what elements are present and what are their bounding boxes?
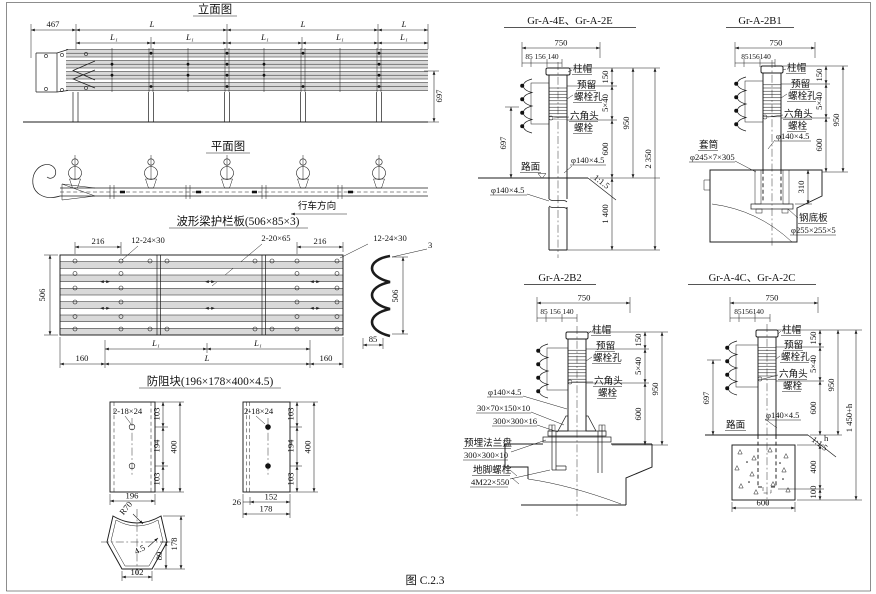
reserved-label-1: 预留 xyxy=(596,340,615,352)
blockout-bracket xyxy=(736,345,758,387)
dim-600: 600 xyxy=(600,143,610,156)
reserved-label-2: 螺栓孔 xyxy=(788,90,817,102)
terminal-spiral xyxy=(33,164,60,197)
plate16-label: 300×300×16 xyxy=(493,416,538,426)
holes-label-left: 12-24×30 xyxy=(131,235,165,245)
thickness-label: 3 xyxy=(428,240,432,250)
detailB-title: Gr-A-2B1 xyxy=(738,16,781,27)
dim-600-foundation: 600 xyxy=(757,498,770,508)
road-label: 路面 xyxy=(726,419,746,431)
dim-L1: L₁ xyxy=(185,32,194,42)
dim-150: 150 xyxy=(633,334,643,347)
detail-gr-a-4c-2c: Gr-A-4C、Gr-A-2C 750 85156140 1:1.5 h 路面 … xyxy=(688,273,862,512)
dim-697: 697 xyxy=(701,391,711,405)
gusset-label: 30×70×150×10 xyxy=(477,403,530,413)
pipe-label: φ140×4.5 xyxy=(776,131,809,141)
dim-600: 600 xyxy=(814,139,824,152)
dim-750: 750 xyxy=(555,38,568,48)
dim-L1-b: L₁ xyxy=(253,338,262,348)
dim-467: 467 xyxy=(47,19,61,29)
dim-194: 194 xyxy=(152,439,162,453)
posts xyxy=(73,92,382,122)
dim-506-right: 506 xyxy=(390,289,400,303)
dim-L: L xyxy=(401,19,407,29)
plan-view: 平面图 行车方向 xyxy=(33,140,428,214)
pipe-label-upper: φ140×4.5 xyxy=(571,155,604,165)
dim-L: L xyxy=(204,353,210,363)
blockout-bracket xyxy=(745,81,763,122)
block-title: 防阻块(196×178×400×4.5) xyxy=(147,374,274,388)
dim-506-left: 506 xyxy=(37,288,47,302)
base-plate-label-2: φ255×255×5 xyxy=(791,225,836,235)
dim-196: 196 xyxy=(126,491,140,501)
dim-L1: L₁ xyxy=(109,32,118,42)
dim-160-right: 160 xyxy=(320,353,333,363)
drawing-page: 立面图 467 L L L L₁ L₁ L₁ L₁ L₁ xyxy=(0,0,876,594)
dim-L1: L₁ xyxy=(335,32,344,42)
dim-950: 950 xyxy=(621,117,631,130)
hex-bolt-label-1: 六角头 xyxy=(779,368,808,380)
dim-310: 310 xyxy=(796,181,806,194)
dim-L: L xyxy=(149,19,155,29)
elevation-view: 立面图 467 L L L L₁ L₁ L₁ L₁ L₁ xyxy=(23,2,444,122)
dim-5x40: 5×40 xyxy=(633,357,643,375)
beam-plate-drawing: 波形梁护栏板(506×85×3) 216 12-24×30 2-20×65 21… xyxy=(37,214,432,368)
pipe-label-lower: φ140×4.5 xyxy=(491,185,524,195)
dim-L: L xyxy=(300,19,306,29)
post-break xyxy=(549,199,567,209)
beam-profile xyxy=(520,79,532,133)
block-section: R70 4.5 89 178 102 xyxy=(101,499,185,581)
dim-89: 89 xyxy=(154,552,164,561)
block-drawing: 防阻块(196×178×400×4.5) 2-18×24 103 194 103… xyxy=(101,374,318,581)
plan-title: 平面图 xyxy=(211,140,245,153)
dim-750: 750 xyxy=(578,293,591,303)
reserved-label-2: 螺栓孔 xyxy=(781,351,810,363)
reserved-label-2: 螺栓孔 xyxy=(593,352,622,364)
dim-216-left: 216 xyxy=(92,236,106,246)
anchor-label-1: 地脚螺栓 xyxy=(473,464,512,476)
dim-4.5: 4.5 xyxy=(132,542,146,556)
dim-L1: L₁ xyxy=(260,32,269,42)
hex-bolt-label-2: 螺栓 xyxy=(783,380,803,392)
blockout-bracket xyxy=(531,83,549,124)
dim-85-156-140: 85156140 xyxy=(734,307,764,316)
detail-gr-a-4e-2e: Gr-A-4E、Gr-A-2E 750 85 156 140 1:1.5 路面 … xyxy=(478,16,660,258)
detailD-title: Gr-A-4C、Gr-A-2C xyxy=(709,273,796,284)
pipe-label: φ140×4.5 xyxy=(488,387,521,397)
dim-600: 600 xyxy=(633,408,643,421)
dim-950: 950 xyxy=(831,114,841,127)
plan-posts xyxy=(69,155,386,188)
dim-85-156-140: 85156140 xyxy=(741,52,771,61)
dim-R70: R70 xyxy=(117,499,134,516)
cap-label: 柱帽 xyxy=(573,63,592,75)
base-plate-label-1: 钢底板 xyxy=(799,212,828,224)
cap-label: 柱帽 xyxy=(592,324,611,336)
dim-1450h: 1 450+h xyxy=(844,403,854,432)
dim-400: 400 xyxy=(808,461,818,474)
beam-profile xyxy=(536,344,548,398)
dim-103: 103 xyxy=(152,408,162,421)
detailC-title: Gr-A-2B2 xyxy=(538,273,581,284)
road-label: 路面 xyxy=(521,161,541,173)
dim-950: 950 xyxy=(650,383,660,396)
dim-178: 178 xyxy=(260,504,273,514)
dim-85-156-140: 85 156 140 xyxy=(525,52,559,61)
cap-label: 柱帽 xyxy=(787,62,806,74)
traffic-direction-label: 行车方向 xyxy=(298,200,336,212)
reserved-label-2: 螺栓孔 xyxy=(574,91,603,103)
dim-h: h xyxy=(824,433,829,443)
blockout-bracket xyxy=(547,348,568,390)
dim-85-156-140: 85 156 140 xyxy=(540,307,574,316)
dim-103: 103 xyxy=(286,408,296,421)
pipe-label: φ140×4.5 xyxy=(766,410,799,420)
guardrail-beams xyxy=(66,50,428,91)
sleeve-label-1: 套筒 xyxy=(699,139,719,151)
reserved-label-1: 预留 xyxy=(577,79,596,91)
dim-194: 194 xyxy=(286,439,296,453)
reserved-label-1: 预留 xyxy=(784,339,803,351)
dim-103: 103 xyxy=(286,473,296,486)
dim-1400: 1 400 xyxy=(600,204,610,223)
dim-697: 697 xyxy=(498,136,508,150)
elevation-title: 立面图 xyxy=(198,2,232,16)
dim-750: 750 xyxy=(766,293,779,303)
flange-label-2: 300×300×10 xyxy=(464,450,508,460)
detailA-title: Gr-A-4E、Gr-A-2E xyxy=(527,16,612,27)
holes-label-right: 12-24×30 xyxy=(373,233,407,243)
slope-label: 1:1.5 xyxy=(592,172,612,190)
dim-L1-a: L₁ xyxy=(151,338,160,348)
dim-160-left: 160 xyxy=(76,353,89,363)
dim-950: 950 xyxy=(826,379,836,392)
hex-bolt-label-2: 螺栓 xyxy=(574,122,594,134)
dim-400: 400 xyxy=(169,441,179,454)
plate-title: 波形梁护栏板(506×85×3) xyxy=(177,214,300,228)
concrete-texture xyxy=(735,448,790,494)
concrete-foundation xyxy=(732,445,795,500)
dim-26: 26 xyxy=(232,497,241,507)
dim-216-right: 216 xyxy=(314,236,328,246)
block-holes-label-side: 2-18×24 xyxy=(244,406,274,416)
dim-750: 750 xyxy=(770,38,783,48)
dim-697: 697 xyxy=(434,89,444,103)
beam-profile xyxy=(725,341,737,395)
wave-profile xyxy=(372,256,390,336)
dim-600: 600 xyxy=(808,402,818,415)
flange-label-1: 预埋法兰盘 xyxy=(464,437,512,449)
block-holes-label-front: 2-18×24 xyxy=(113,406,143,416)
dim-400: 400 xyxy=(303,441,313,454)
dim-5x40: 5×40 xyxy=(814,92,824,110)
hex-bolt-label-1: 六角头 xyxy=(594,375,623,387)
sleeve-label-2: φ245×7×305 xyxy=(690,152,735,162)
drawing-canvas: 立面图 467 L L L L₁ L₁ L₁ L₁ L₁ xyxy=(0,0,876,594)
curb-block xyxy=(505,444,652,505)
beam-profile xyxy=(734,77,746,131)
dim-102: 102 xyxy=(131,567,144,577)
anchor-label-2: 4M22×550 xyxy=(471,477,509,487)
dim-150: 150 xyxy=(808,332,818,345)
dim-103: 103 xyxy=(152,473,162,486)
dim-2350: 2 350 xyxy=(643,149,653,168)
dim-150: 150 xyxy=(814,69,824,82)
figure-caption: 图 C.2.3 xyxy=(406,574,445,587)
dim-L1: L₁ xyxy=(399,32,408,42)
dim-152: 152 xyxy=(265,492,278,502)
dim-178s: 178 xyxy=(169,538,179,551)
dim-85: 85 xyxy=(369,334,378,344)
dim-150: 150 xyxy=(600,71,610,84)
dim-5x40: 5×40 xyxy=(600,94,610,112)
hex-bolt-label-2: 螺栓 xyxy=(598,387,618,399)
slots-label: 2-20×65 xyxy=(261,233,290,243)
dim-100: 100 xyxy=(808,486,818,499)
detail-gr-a-2b1: Gr-A-2B1 750 85156140 柱帽 预留 螺栓孔 六角头 螺栓 φ… xyxy=(689,16,848,248)
detail-gr-a-2b2: Gr-A-2B2 750 85 156 140 柱帽 预留 螺栓孔 六角头 螺栓… xyxy=(463,273,668,516)
dim-5x40: 5×40 xyxy=(808,355,818,373)
